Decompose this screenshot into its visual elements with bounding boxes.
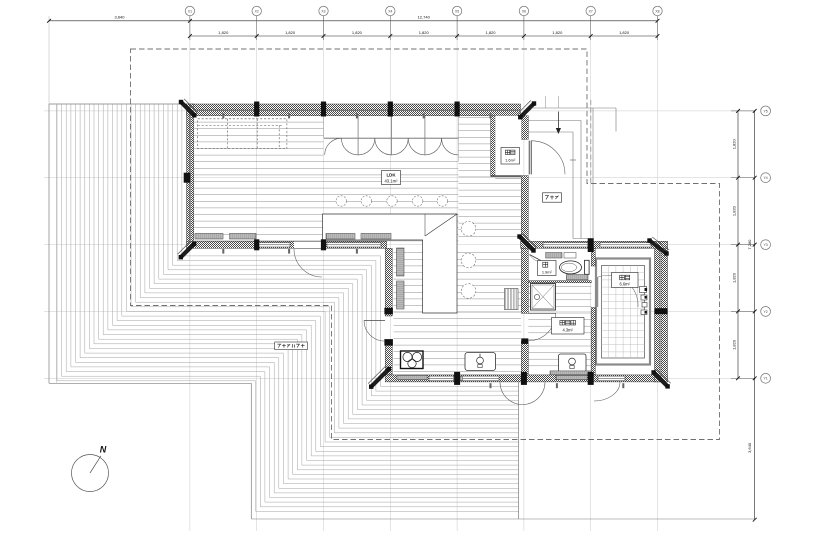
svg-text:X2: X2 bbox=[255, 10, 259, 14]
svg-text:7,280: 7,280 bbox=[747, 239, 752, 250]
svg-text:X4: X4 bbox=[388, 10, 392, 14]
svg-text:1,820: 1,820 bbox=[485, 30, 496, 35]
svg-text:3,640: 3,640 bbox=[747, 442, 752, 453]
svg-text:6.6m²: 6.6m² bbox=[619, 282, 630, 287]
svg-text:1,820: 1,820 bbox=[619, 30, 630, 35]
svg-text:1,820: 1,820 bbox=[731, 205, 736, 216]
svg-text:Y5: Y5 bbox=[764, 109, 768, 113]
svg-text:1,820: 1,820 bbox=[552, 30, 563, 35]
svg-text:X6: X6 bbox=[522, 10, 526, 14]
svg-text:X5: X5 bbox=[455, 10, 459, 14]
svg-text:Y4: Y4 bbox=[764, 176, 768, 180]
svg-text:4.3m²: 4.3m² bbox=[562, 328, 573, 333]
svg-text:1,820: 1,820 bbox=[285, 30, 296, 35]
svg-text:43.1m²: 43.1m² bbox=[384, 179, 398, 184]
svg-text:3,640: 3,640 bbox=[114, 15, 125, 20]
svg-text:X8: X8 bbox=[655, 10, 659, 14]
svg-text:1,820: 1,820 bbox=[731, 339, 736, 350]
svg-text:LDK: LDK bbox=[386, 173, 396, 178]
svg-text:Y2: Y2 bbox=[764, 310, 768, 314]
svg-text:1,820: 1,820 bbox=[731, 139, 736, 150]
svg-text:X1: X1 bbox=[188, 10, 192, 14]
svg-text:1,820: 1,820 bbox=[419, 30, 430, 35]
svg-text:1.9m²: 1.9m² bbox=[542, 270, 553, 275]
svg-text:X3: X3 bbox=[321, 10, 325, 14]
svg-text:Y3: Y3 bbox=[764, 243, 768, 247]
svg-text:1,820: 1,820 bbox=[731, 272, 736, 283]
svg-text:X7: X7 bbox=[589, 10, 593, 14]
svg-text:1,820: 1,820 bbox=[218, 30, 229, 35]
svg-text:12,740: 12,740 bbox=[418, 15, 431, 20]
svg-text:1.6m²: 1.6m² bbox=[505, 158, 516, 163]
svg-text:Y1: Y1 bbox=[764, 377, 768, 381]
svg-text:1,820: 1,820 bbox=[352, 30, 363, 35]
svg-text:N: N bbox=[100, 445, 107, 455]
